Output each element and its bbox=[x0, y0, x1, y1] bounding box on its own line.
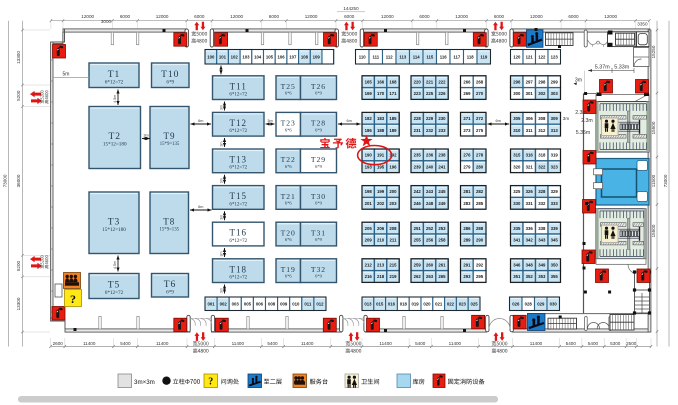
svg-text:2500: 2500 bbox=[626, 341, 637, 346]
svg-text:265: 265 bbox=[438, 274, 446, 279]
svg-text:6*6: 6*6 bbox=[285, 127, 293, 132]
svg-text:272: 272 bbox=[476, 116, 484, 121]
svg-text:170: 170 bbox=[377, 91, 385, 96]
svg-text:242: 242 bbox=[414, 189, 422, 194]
svg-text:248: 248 bbox=[426, 201, 434, 206]
svg-text:285: 285 bbox=[476, 201, 484, 206]
svg-text:6000: 6000 bbox=[344, 14, 355, 19]
svg-text:118: 118 bbox=[467, 54, 475, 59]
svg-text:245: 245 bbox=[438, 189, 446, 194]
svg-text:029: 029 bbox=[537, 301, 545, 306]
svg-text:221: 221 bbox=[426, 79, 434, 84]
svg-text:113: 113 bbox=[399, 54, 407, 59]
svg-text:343: 343 bbox=[538, 238, 546, 243]
svg-text:318: 318 bbox=[538, 153, 546, 158]
svg-text:11400: 11400 bbox=[379, 341, 392, 346]
svg-text:?: ? bbox=[208, 377, 213, 388]
svg-text:026: 026 bbox=[512, 301, 520, 306]
svg-text:001: 001 bbox=[208, 301, 216, 306]
svg-text:326: 326 bbox=[526, 189, 534, 194]
svg-text:12000: 12000 bbox=[455, 14, 468, 19]
svg-text:6*12=72: 6*12=72 bbox=[105, 290, 124, 296]
svg-text:6m: 6m bbox=[496, 119, 501, 123]
svg-text:352: 352 bbox=[526, 274, 534, 279]
svg-text:6000: 6000 bbox=[120, 14, 131, 19]
svg-text:208: 208 bbox=[389, 226, 397, 231]
svg-text:323: 323 bbox=[551, 164, 559, 169]
svg-text:12000: 12000 bbox=[604, 14, 617, 19]
svg-text:276: 276 bbox=[463, 153, 471, 158]
svg-text:349: 349 bbox=[538, 262, 546, 267]
svg-text:6*9: 6*9 bbox=[166, 79, 174, 85]
svg-text:188: 188 bbox=[377, 128, 385, 133]
svg-text:106: 106 bbox=[278, 54, 286, 59]
svg-text:028: 028 bbox=[525, 301, 533, 306]
svg-text:11400: 11400 bbox=[301, 341, 314, 346]
svg-text:102: 102 bbox=[231, 54, 239, 59]
svg-text:5400: 5400 bbox=[120, 341, 131, 346]
svg-text:260: 260 bbox=[426, 262, 434, 267]
svg-text:3000: 3000 bbox=[101, 19, 112, 24]
svg-text:012: 012 bbox=[316, 301, 324, 306]
svg-text:15*9=135: 15*9=135 bbox=[160, 227, 180, 232]
svg-text:12000: 12000 bbox=[81, 14, 94, 19]
svg-text:122: 122 bbox=[538, 54, 546, 59]
svg-text:15*9=135: 15*9=135 bbox=[160, 142, 180, 147]
svg-text:211: 211 bbox=[390, 238, 398, 243]
svg-text:199: 199 bbox=[377, 189, 385, 194]
svg-text:209: 209 bbox=[365, 238, 373, 243]
svg-text:116: 116 bbox=[440, 54, 448, 59]
svg-text:332: 332 bbox=[538, 201, 546, 206]
svg-text:119: 119 bbox=[480, 54, 488, 59]
svg-text:186: 186 bbox=[365, 128, 373, 133]
svg-text:019: 019 bbox=[412, 301, 420, 306]
svg-text:297: 297 bbox=[526, 79, 534, 84]
svg-text:185: 185 bbox=[389, 116, 397, 121]
svg-text:328: 328 bbox=[538, 189, 546, 194]
svg-text:5200: 5200 bbox=[16, 90, 21, 101]
svg-text:T8: T8 bbox=[163, 216, 175, 226]
svg-text:348: 348 bbox=[526, 262, 534, 267]
svg-text:168: 168 bbox=[389, 79, 397, 84]
svg-text:3m: 3m bbox=[219, 142, 223, 147]
svg-text:3350: 3350 bbox=[637, 21, 648, 26]
svg-text:11400: 11400 bbox=[156, 341, 169, 346]
svg-text:15500: 15500 bbox=[651, 224, 656, 237]
svg-text:003: 003 bbox=[232, 301, 240, 306]
svg-text:011: 011 bbox=[304, 301, 312, 306]
svg-text:144250: 144250 bbox=[343, 6, 359, 11]
svg-text:T18: T18 bbox=[230, 264, 248, 274]
svg-text:271: 271 bbox=[463, 116, 471, 121]
svg-text:15*12=180: 15*12=180 bbox=[102, 227, 126, 233]
svg-text:021: 021 bbox=[435, 301, 443, 306]
svg-text:210: 210 bbox=[377, 238, 385, 243]
svg-text:104: 104 bbox=[254, 54, 262, 59]
svg-text:256: 256 bbox=[426, 238, 434, 243]
svg-text:5m: 5m bbox=[63, 72, 70, 78]
svg-text:249: 249 bbox=[438, 201, 446, 206]
svg-text:295: 295 bbox=[476, 274, 484, 279]
svg-text:302: 302 bbox=[538, 91, 546, 96]
svg-text:6*6: 6*6 bbox=[285, 164, 293, 169]
svg-text:3m: 3m bbox=[219, 215, 223, 220]
svg-text:005: 005 bbox=[244, 301, 252, 306]
svg-text:239: 239 bbox=[414, 164, 422, 169]
svg-text:023: 023 bbox=[459, 301, 467, 306]
svg-text:3m×3m: 3m×3m bbox=[134, 379, 155, 386]
svg-text:253: 253 bbox=[438, 226, 446, 231]
svg-text:110: 110 bbox=[359, 54, 367, 59]
svg-text:236: 236 bbox=[426, 153, 434, 158]
svg-text:12000: 12000 bbox=[305, 14, 318, 19]
svg-text:312: 312 bbox=[538, 128, 546, 133]
svg-text:203: 203 bbox=[389, 201, 397, 206]
svg-text:240: 240 bbox=[426, 164, 434, 169]
svg-text:269: 269 bbox=[463, 91, 471, 96]
svg-text:243: 243 bbox=[426, 189, 434, 194]
svg-text:3m: 3m bbox=[219, 288, 223, 293]
svg-text:316: 316 bbox=[526, 153, 534, 158]
svg-text:107: 107 bbox=[289, 54, 297, 59]
svg-text:123: 123 bbox=[551, 54, 559, 59]
svg-text:225: 225 bbox=[426, 91, 434, 96]
svg-text:15500: 15500 bbox=[651, 121, 656, 134]
svg-text:4.5m: 4.5m bbox=[113, 95, 117, 103]
svg-text:278: 278 bbox=[476, 153, 484, 158]
svg-text:6*12=72: 6*12=72 bbox=[229, 129, 247, 134]
svg-text:2600: 2600 bbox=[53, 341, 64, 346]
svg-text:315: 315 bbox=[513, 153, 521, 158]
svg-text:215: 215 bbox=[389, 262, 397, 267]
svg-text:36000: 36000 bbox=[16, 174, 21, 187]
svg-text:228: 228 bbox=[414, 116, 422, 121]
svg-text:101: 101 bbox=[219, 54, 227, 59]
svg-text:?: ? bbox=[70, 292, 76, 306]
svg-text:165: 165 bbox=[365, 79, 373, 84]
svg-text:309: 309 bbox=[551, 116, 559, 121]
svg-text:291: 291 bbox=[463, 262, 471, 267]
svg-text:273: 273 bbox=[463, 128, 471, 133]
svg-text:12000: 12000 bbox=[381, 14, 394, 19]
svg-text:275: 275 bbox=[476, 128, 484, 133]
svg-text:13300: 13300 bbox=[16, 51, 21, 64]
svg-text:329: 329 bbox=[551, 189, 559, 194]
svg-text:020: 020 bbox=[423, 301, 431, 306]
svg-text:205: 205 bbox=[365, 226, 373, 231]
svg-text:308: 308 bbox=[538, 116, 546, 121]
svg-text:73000: 73000 bbox=[3, 174, 8, 187]
svg-text:15250: 15250 bbox=[651, 45, 656, 58]
svg-text:6000: 6000 bbox=[419, 14, 430, 19]
svg-text:3m: 3m bbox=[219, 252, 223, 257]
svg-text:T19: T19 bbox=[281, 265, 296, 274]
svg-text:025: 025 bbox=[471, 301, 479, 306]
svg-text:T20: T20 bbox=[281, 228, 296, 237]
svg-text:166: 166 bbox=[377, 79, 385, 84]
svg-text:220: 220 bbox=[414, 79, 422, 84]
svg-text:336: 336 bbox=[526, 226, 534, 231]
svg-text:282: 282 bbox=[476, 189, 484, 194]
svg-text:305: 305 bbox=[513, 116, 521, 121]
svg-text:338: 338 bbox=[538, 226, 546, 231]
svg-text:322: 322 bbox=[538, 164, 546, 169]
svg-text:T16: T16 bbox=[230, 228, 248, 238]
svg-text:6*9: 6*9 bbox=[315, 201, 323, 206]
svg-text:112: 112 bbox=[386, 54, 394, 59]
svg-text:4.5m: 4.5m bbox=[113, 261, 117, 269]
svg-text:T32: T32 bbox=[311, 265, 326, 274]
svg-text:121: 121 bbox=[526, 54, 534, 59]
svg-text:213: 213 bbox=[377, 262, 385, 267]
svg-text:016: 016 bbox=[388, 301, 396, 306]
svg-text:230: 230 bbox=[438, 116, 446, 121]
svg-text:289: 289 bbox=[463, 238, 471, 243]
svg-text:222: 222 bbox=[438, 79, 446, 84]
svg-text:288: 288 bbox=[476, 226, 484, 231]
svg-text:196: 196 bbox=[389, 164, 397, 169]
svg-text:293: 293 bbox=[463, 274, 471, 279]
svg-text:330: 330 bbox=[513, 201, 521, 206]
svg-text:353: 353 bbox=[538, 274, 546, 279]
svg-text:6000: 6000 bbox=[194, 14, 205, 19]
svg-text:12000: 12000 bbox=[230, 14, 243, 19]
svg-text:171: 171 bbox=[389, 91, 397, 96]
svg-text:111: 111 bbox=[372, 54, 379, 59]
svg-text:5300: 5300 bbox=[610, 341, 621, 346]
svg-text:321: 321 bbox=[526, 164, 534, 169]
svg-text:T31: T31 bbox=[311, 228, 326, 237]
svg-text:5.35m: 5.35m bbox=[576, 130, 590, 136]
svg-text:12000: 12000 bbox=[156, 14, 169, 19]
svg-text:355: 355 bbox=[551, 274, 559, 279]
svg-text:200: 200 bbox=[389, 189, 397, 194]
svg-text:12000: 12000 bbox=[530, 14, 543, 19]
svg-text:11400: 11400 bbox=[83, 341, 96, 346]
svg-text:114: 114 bbox=[413, 54, 421, 59]
svg-text:231: 231 bbox=[414, 128, 422, 133]
svg-text:6*12=72: 6*12=72 bbox=[105, 79, 124, 85]
svg-text:286: 286 bbox=[463, 226, 471, 231]
svg-text:6m: 6m bbox=[198, 119, 203, 123]
svg-text:301: 301 bbox=[526, 91, 534, 96]
svg-text:6000: 6000 bbox=[568, 14, 579, 19]
svg-text:6*6: 6*6 bbox=[285, 201, 293, 206]
svg-text:6000: 6000 bbox=[494, 14, 505, 19]
svg-text:T28: T28 bbox=[311, 119, 326, 128]
svg-text:300: 300 bbox=[513, 91, 521, 96]
svg-text:189: 189 bbox=[389, 128, 397, 133]
svg-text:333: 333 bbox=[551, 201, 559, 206]
svg-text:279: 279 bbox=[463, 164, 471, 169]
svg-text:306: 306 bbox=[526, 116, 534, 121]
svg-text:292: 292 bbox=[476, 262, 484, 267]
svg-text:226: 226 bbox=[438, 91, 446, 96]
svg-text:015: 015 bbox=[376, 301, 384, 306]
svg-text:6*9: 6*9 bbox=[315, 237, 323, 242]
svg-text:262: 262 bbox=[414, 274, 422, 279]
svg-text:6*6: 6*6 bbox=[285, 237, 293, 242]
svg-text:6*12=72: 6*12=72 bbox=[229, 202, 247, 207]
svg-text:3m: 3m bbox=[267, 119, 272, 123]
svg-text:313: 313 bbox=[551, 128, 559, 133]
svg-text:6m: 6m bbox=[347, 119, 352, 123]
svg-text:298: 298 bbox=[538, 79, 546, 84]
svg-text:11400: 11400 bbox=[449, 341, 462, 346]
svg-text:251: 251 bbox=[414, 226, 422, 231]
svg-text:5400: 5400 bbox=[415, 341, 426, 346]
svg-text:T11: T11 bbox=[230, 81, 247, 91]
svg-text:218: 218 bbox=[377, 274, 385, 279]
svg-text:013: 013 bbox=[364, 301, 372, 306]
svg-text:11500: 11500 bbox=[651, 174, 656, 187]
svg-text:259: 259 bbox=[414, 262, 422, 267]
svg-text:115: 115 bbox=[426, 54, 434, 59]
svg-text:320: 320 bbox=[513, 164, 521, 169]
svg-text:339: 339 bbox=[551, 226, 559, 231]
svg-text:266: 266 bbox=[463, 79, 471, 84]
svg-text:009: 009 bbox=[280, 301, 288, 306]
svg-text:190: 190 bbox=[365, 153, 373, 158]
svg-text:5400: 5400 bbox=[588, 341, 599, 346]
svg-text:268: 268 bbox=[476, 79, 484, 84]
svg-text:6*12=72: 6*12=72 bbox=[229, 239, 247, 244]
svg-text:105: 105 bbox=[266, 54, 274, 59]
svg-text:6*9: 6*9 bbox=[315, 164, 323, 169]
svg-text:335: 335 bbox=[513, 226, 521, 231]
svg-text:022: 022 bbox=[447, 301, 455, 306]
svg-text:6*9: 6*9 bbox=[315, 127, 323, 132]
svg-text:229: 229 bbox=[426, 116, 434, 121]
svg-text:342: 342 bbox=[526, 238, 534, 243]
svg-text:2.3m: 2.3m bbox=[581, 118, 593, 124]
svg-text:263: 263 bbox=[426, 274, 434, 279]
svg-text:T25: T25 bbox=[281, 82, 296, 91]
svg-text:103: 103 bbox=[242, 54, 250, 59]
svg-text:109: 109 bbox=[313, 54, 321, 59]
svg-text:11400: 11400 bbox=[232, 341, 245, 346]
svg-text:261: 261 bbox=[438, 262, 446, 267]
svg-text:325: 325 bbox=[513, 189, 521, 194]
svg-text:T13: T13 bbox=[230, 155, 248, 165]
svg-text:6*9: 6*9 bbox=[315, 91, 323, 96]
svg-text:303: 303 bbox=[551, 91, 559, 96]
svg-text:281: 281 bbox=[463, 189, 471, 194]
svg-text:T30: T30 bbox=[311, 192, 326, 201]
svg-text:008: 008 bbox=[268, 301, 276, 306]
svg-text:T12: T12 bbox=[230, 118, 248, 128]
svg-text:350: 350 bbox=[551, 262, 559, 267]
svg-text:216: 216 bbox=[365, 274, 373, 279]
svg-text:6*12=72: 6*12=72 bbox=[229, 93, 247, 98]
svg-text:201: 201 bbox=[365, 201, 373, 206]
svg-text:6*9: 6*9 bbox=[166, 289, 174, 295]
svg-text:346: 346 bbox=[513, 262, 521, 267]
svg-text:108: 108 bbox=[301, 54, 309, 59]
svg-text:3m: 3m bbox=[143, 133, 148, 137]
svg-text:246: 246 bbox=[414, 201, 422, 206]
svg-text:169: 169 bbox=[365, 91, 373, 96]
svg-text:73000: 73000 bbox=[663, 174, 668, 187]
svg-text:T21: T21 bbox=[281, 192, 296, 201]
svg-text:T22: T22 bbox=[281, 155, 296, 164]
svg-text:233: 233 bbox=[438, 128, 446, 133]
svg-text:223: 223 bbox=[414, 91, 422, 96]
svg-text:198: 198 bbox=[365, 189, 373, 194]
svg-text:258: 258 bbox=[438, 238, 446, 243]
svg-text:351: 351 bbox=[513, 274, 521, 279]
svg-text:206: 206 bbox=[377, 226, 385, 231]
svg-text:232: 232 bbox=[426, 128, 434, 133]
svg-text:T9: T9 bbox=[164, 131, 176, 141]
svg-text:331: 331 bbox=[526, 201, 534, 206]
svg-text:T23: T23 bbox=[281, 119, 296, 128]
svg-text:002: 002 bbox=[220, 301, 228, 306]
svg-text:3m: 3m bbox=[219, 105, 223, 110]
svg-text:100: 100 bbox=[207, 54, 215, 59]
svg-text:T29: T29 bbox=[311, 155, 326, 164]
svg-text:345: 345 bbox=[551, 238, 559, 243]
svg-text:311: 311 bbox=[526, 128, 534, 133]
svg-text:010: 010 bbox=[292, 301, 300, 306]
svg-text:T26: T26 bbox=[311, 82, 326, 91]
svg-text:212: 212 bbox=[365, 262, 373, 267]
svg-text:280: 280 bbox=[476, 164, 484, 169]
svg-text:219: 219 bbox=[389, 274, 397, 279]
svg-text:3m: 3m bbox=[219, 178, 223, 183]
svg-text:3m: 3m bbox=[575, 78, 582, 84]
svg-text:5200: 5200 bbox=[16, 260, 21, 271]
svg-text:255: 255 bbox=[414, 238, 422, 243]
svg-text:6*12=72: 6*12=72 bbox=[229, 166, 247, 171]
svg-text:030: 030 bbox=[550, 301, 558, 306]
svg-text:5400: 5400 bbox=[267, 341, 278, 346]
svg-text:11400: 11400 bbox=[530, 341, 543, 346]
svg-text:296: 296 bbox=[513, 79, 521, 84]
svg-text:183: 183 bbox=[377, 116, 385, 121]
svg-text:018: 018 bbox=[400, 301, 408, 306]
svg-text:120: 120 bbox=[513, 54, 521, 59]
svg-text:117: 117 bbox=[453, 54, 461, 59]
svg-text:238: 238 bbox=[438, 153, 446, 158]
svg-text:319: 319 bbox=[551, 153, 559, 158]
svg-text:13300: 13300 bbox=[16, 297, 21, 310]
svg-text:2.3m: 2.3m bbox=[575, 110, 587, 116]
svg-text:252: 252 bbox=[426, 226, 434, 231]
svg-text:241: 241 bbox=[438, 164, 446, 169]
svg-text:310: 310 bbox=[513, 128, 521, 133]
svg-text:283: 283 bbox=[463, 201, 471, 206]
svg-text:290: 290 bbox=[476, 238, 484, 243]
svg-text:6*12=72: 6*12=72 bbox=[229, 276, 247, 281]
svg-text:3m: 3m bbox=[563, 116, 570, 121]
svg-text:T15: T15 bbox=[230, 191, 248, 201]
svg-text:299: 299 bbox=[551, 79, 559, 84]
svg-text:235: 235 bbox=[414, 153, 422, 158]
svg-text:006: 006 bbox=[256, 301, 264, 306]
svg-text:270: 270 bbox=[476, 91, 484, 96]
svg-text:6*6: 6*6 bbox=[285, 274, 293, 279]
svg-text:191: 191 bbox=[377, 153, 385, 158]
svg-text:182: 182 bbox=[365, 116, 373, 121]
svg-text:5400: 5400 bbox=[566, 341, 577, 346]
svg-text:15*12=180: 15*12=180 bbox=[103, 142, 127, 148]
svg-text:6000: 6000 bbox=[269, 14, 280, 19]
svg-text:6*6: 6*6 bbox=[285, 91, 293, 96]
svg-text:6m: 6m bbox=[198, 205, 203, 209]
svg-text:202: 202 bbox=[377, 201, 385, 206]
